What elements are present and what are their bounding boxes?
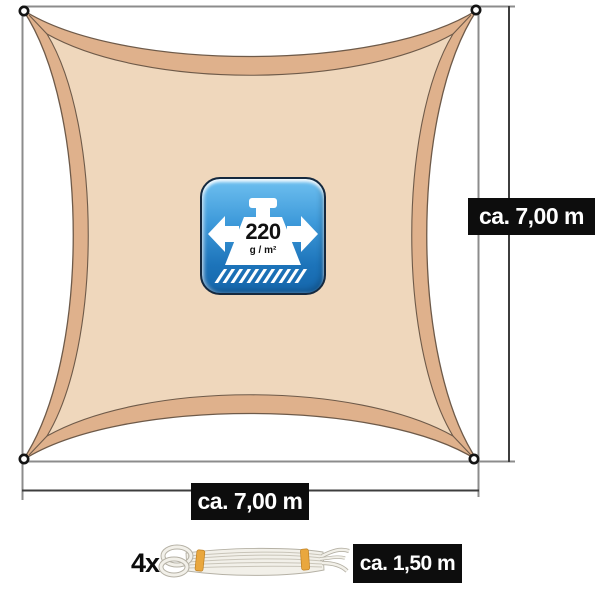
weight-unit: g / m² <box>202 246 324 256</box>
fabric-weight-badge: 220 g / m² <box>200 177 326 295</box>
rope-coil-icon <box>161 547 349 575</box>
height-dimension-label: ca. 7,00 m <box>468 198 595 235</box>
weight-value: 220 <box>202 221 324 243</box>
height-dimension-text: ca. 7,00 m <box>479 203 584 230</box>
rope-quantity: 4x <box>131 548 159 579</box>
product-diagram: ca. 7,00 m ca. 7,00 m 220 g / m² 4x ca. … <box>0 0 600 600</box>
rope-length-label: ca. 1,50 m <box>353 544 462 583</box>
rope-length-text: ca. 1,50 m <box>360 552 455 576</box>
hatched-surface-icon <box>213 269 311 283</box>
width-dimension-text: ca. 7,00 m <box>198 488 303 515</box>
width-dimension-label: ca. 7,00 m <box>191 483 309 520</box>
